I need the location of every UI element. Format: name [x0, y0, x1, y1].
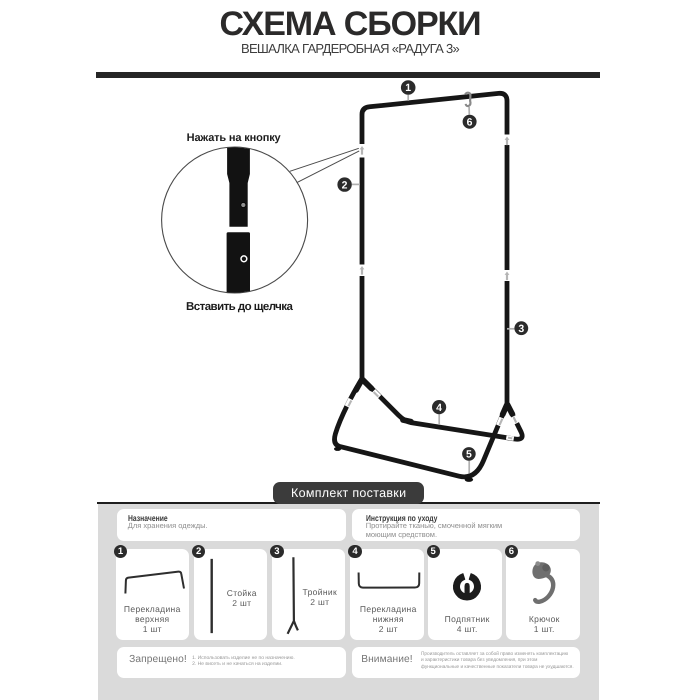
svg-text:2: 2: [342, 179, 348, 191]
svg-text:1: 1: [405, 82, 411, 94]
svg-text:Нажать на кнопку: Нажать на кнопку: [187, 132, 282, 144]
svg-text:Вставить до щелчка: Вставить до щелчка: [186, 301, 293, 313]
svg-text:3: 3: [518, 323, 524, 335]
svg-text:6: 6: [467, 116, 473, 128]
svg-text:5: 5: [466, 449, 472, 461]
svg-text:4: 4: [436, 402, 442, 414]
